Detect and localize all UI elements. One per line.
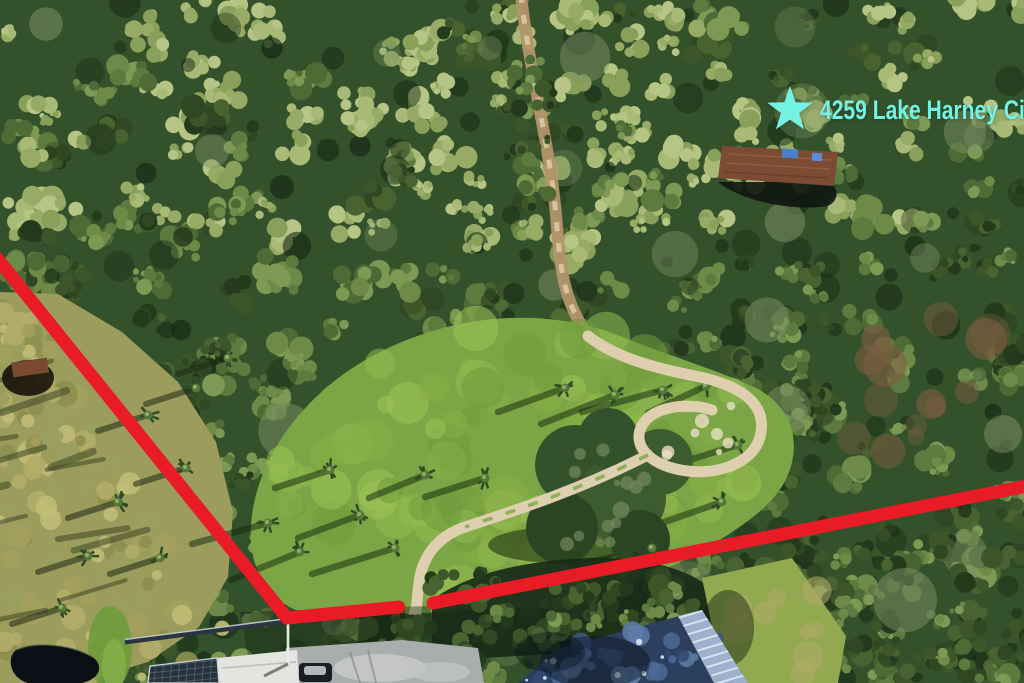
aerial-photo: 4259 Lake Harney Cir: [0, 0, 1024, 683]
suv: [299, 663, 332, 682]
aerial-photo-canvas: [0, 0, 1024, 683]
blue-tarp: [812, 153, 823, 162]
blue-boat: [782, 148, 799, 158]
